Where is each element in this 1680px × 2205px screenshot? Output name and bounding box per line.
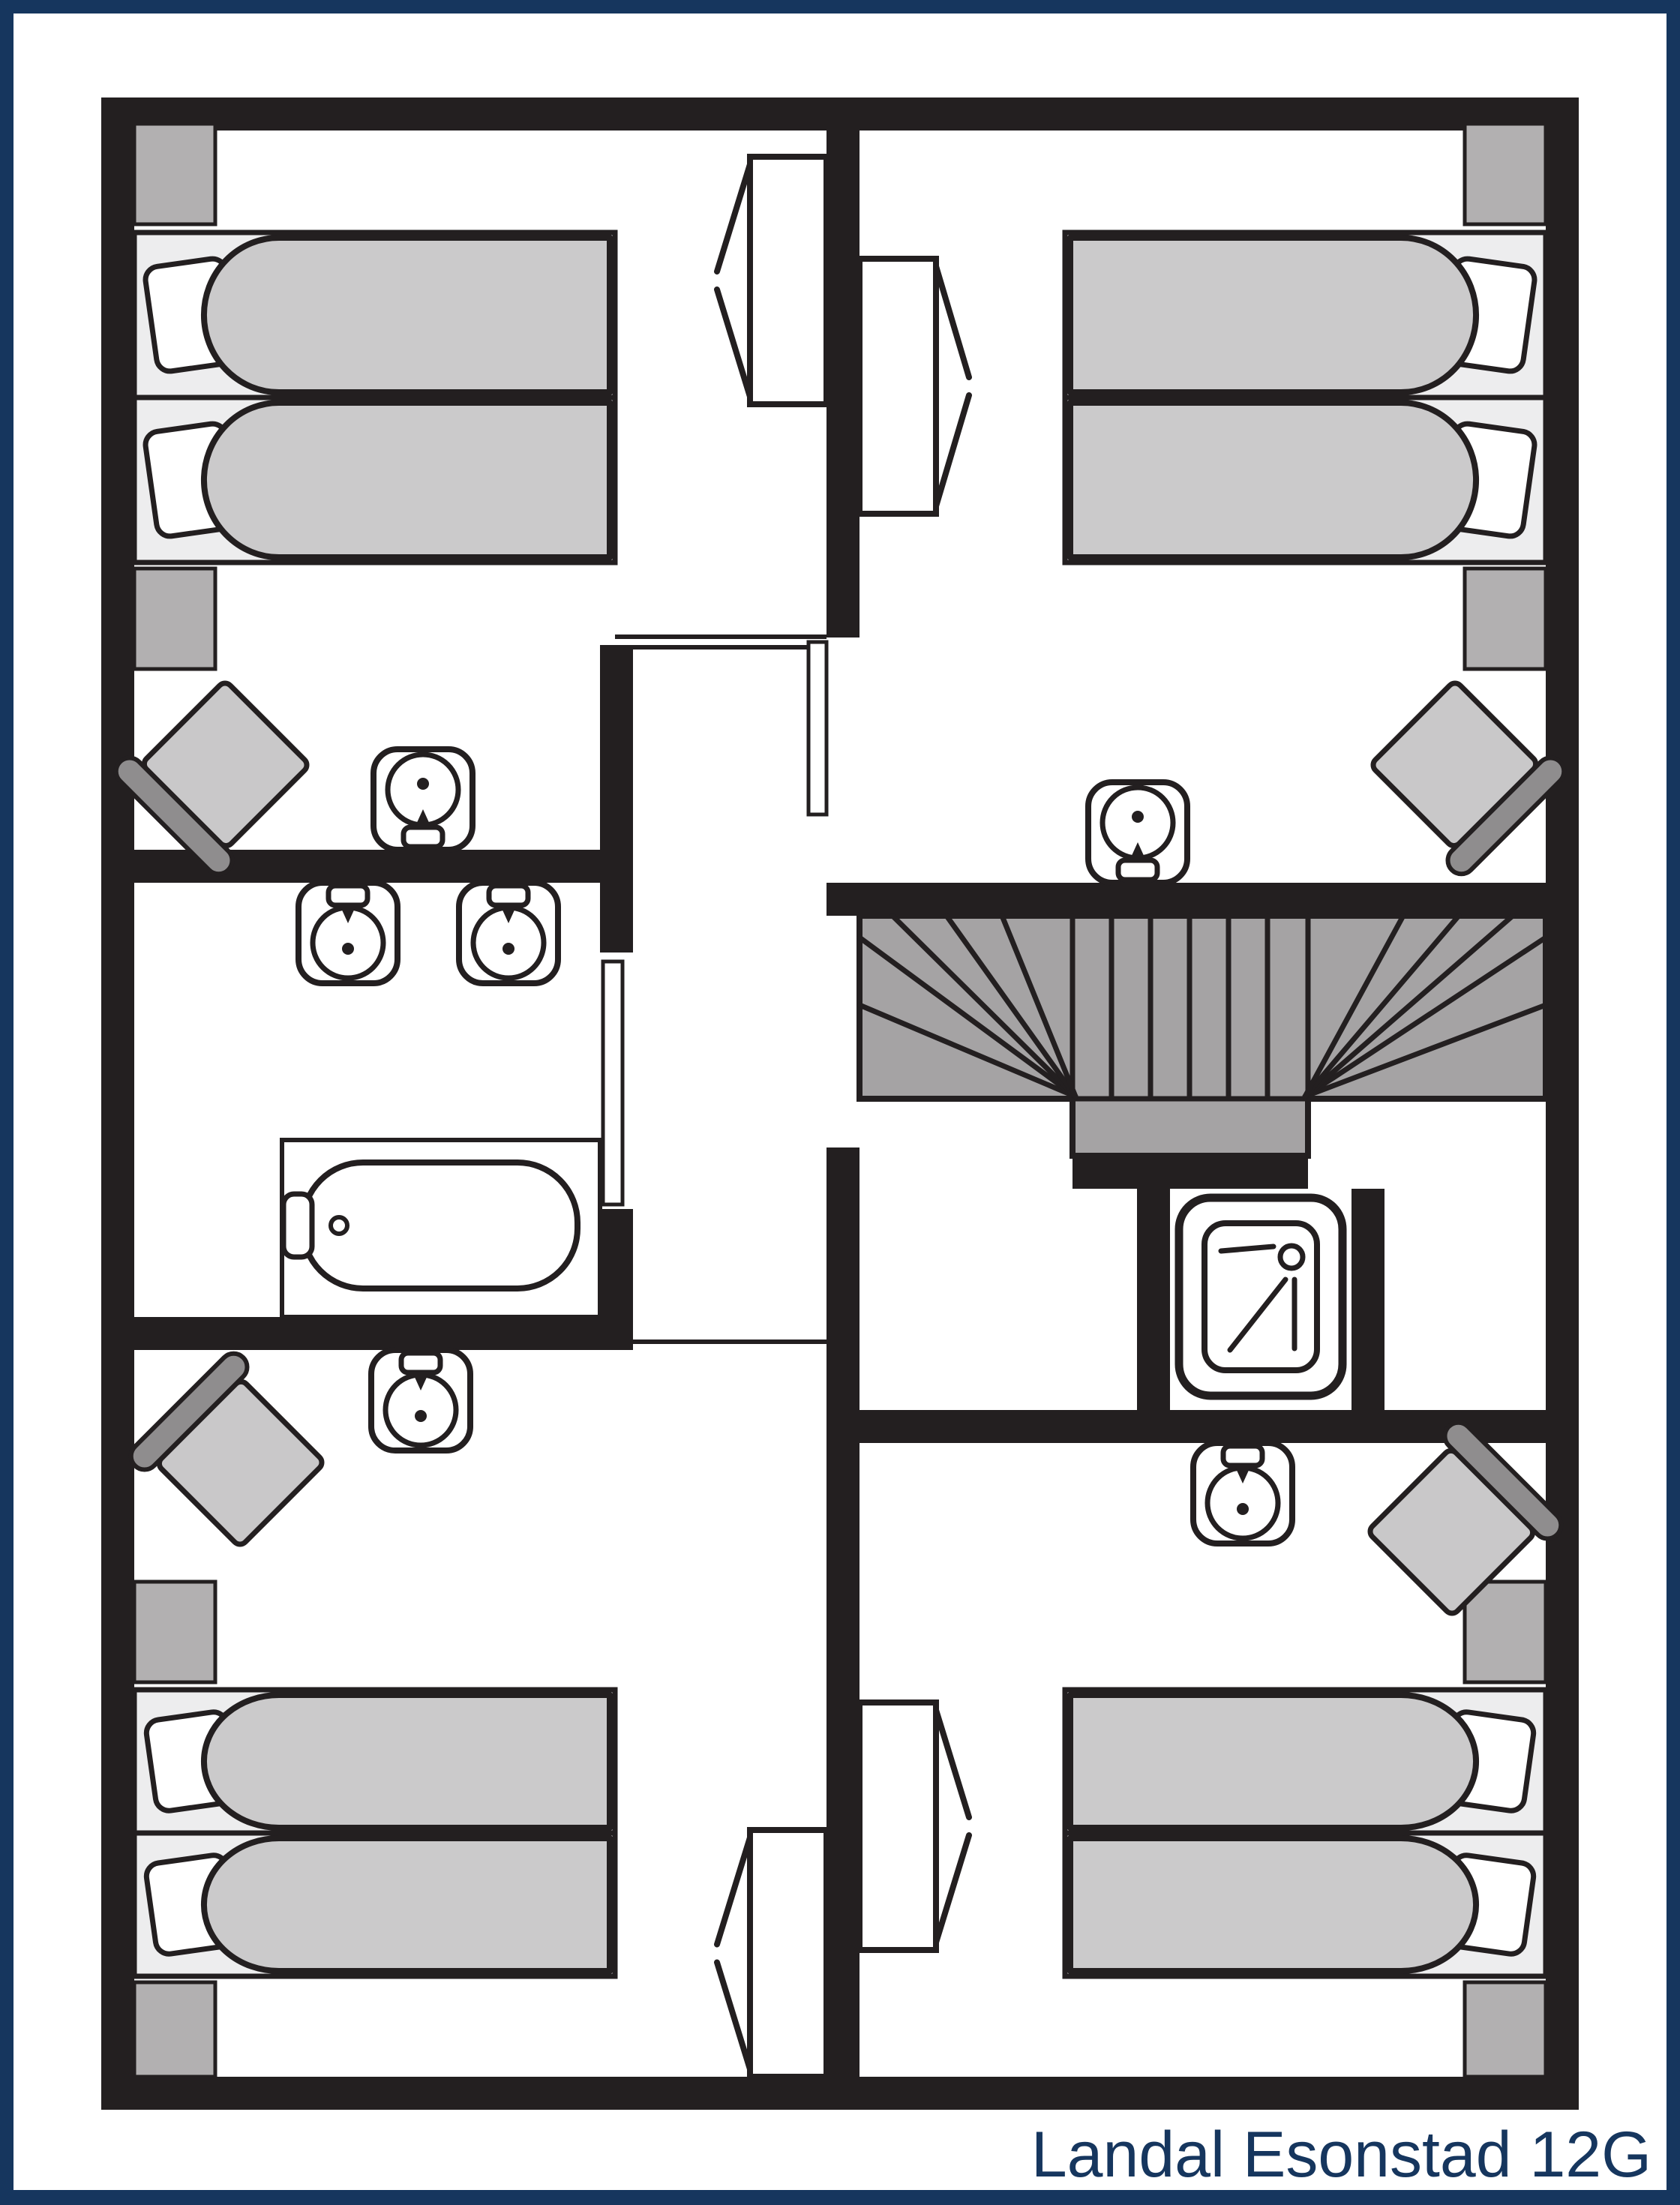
door-leaf-bathroom (603, 961, 622, 1204)
door-bottom-left-room-swing-upper (717, 1837, 750, 1945)
bed-top-left-2-duvet (204, 403, 610, 557)
basin-top-left-room-drain (417, 778, 429, 790)
nightstand-tr-upper (1465, 124, 1546, 224)
basin-top-right-room (1088, 782, 1187, 883)
bed-bottom-right-2 (1065, 1833, 1546, 1976)
nightstand-tl-upper (134, 124, 215, 224)
basin-bottom-left-room (371, 1350, 470, 1450)
door-top-right-room-panel (859, 259, 936, 514)
bed-bottom-right-2-duvet (1070, 1838, 1476, 1971)
bed-top-left-1-duvet (204, 238, 610, 392)
wall-bathroom-east-lower (600, 1209, 633, 1350)
nightstand-bl-upper (134, 1582, 215, 1682)
chair-bottom-left-room (125, 1348, 336, 1558)
door-top-left-room-panel (750, 157, 826, 404)
basin-top-right-room-drain (1132, 811, 1144, 823)
door-bottom-right-room-swing-lower (936, 1835, 969, 1942)
bathtub-drain (331, 1217, 347, 1234)
door-top-right-room-swing-upper (936, 266, 969, 377)
central-wall-bottom (826, 1147, 859, 2077)
bathtub-tap (283, 1194, 312, 1257)
door-bottom-right-room (859, 1702, 969, 1950)
door-bottom-right-room-panel (859, 1702, 936, 1950)
basin-bathroom-2 (459, 883, 558, 983)
door-top-right-room (859, 259, 969, 514)
wall-stairs-top (826, 883, 1546, 916)
door-bottom-left-room-swing-lower (717, 1963, 750, 2070)
shower-knob (1280, 1246, 1303, 1268)
shower-cubicle (1179, 1198, 1342, 1396)
central-wall-top (826, 130, 859, 637)
bed-top-right-1-duvet (1070, 238, 1476, 392)
bed-top-right-2-duvet (1070, 403, 1476, 557)
basin-top-right-room-tap (1118, 860, 1157, 880)
nightstand-tr-lower (1465, 568, 1546, 669)
staircase-outline (859, 916, 1546, 1156)
landing-top-line-2 (615, 645, 826, 649)
basin-top-left-room-tap (403, 827, 442, 847)
basin-bottom-right-room (1193, 1443, 1292, 1543)
nightstand-tl-lower (134, 568, 215, 669)
bed-bottom-left-1 (134, 1690, 615, 1833)
door-top-left-room-swing-upper (717, 164, 750, 271)
nightstand-bl-lower (134, 1982, 215, 2077)
floor-plan-svg (0, 0, 1680, 2205)
basin-bottom-left-room-drain (415, 1410, 427, 1422)
door-top-right-room-swing-lower (936, 395, 969, 506)
basin-bottom-right-room-drain (1237, 1503, 1249, 1515)
nightstand-br-upper (1465, 1582, 1546, 1682)
bed-bottom-left-1-duvet (204, 1695, 610, 1828)
wall-shower-left (1137, 1189, 1170, 1410)
basin-bathroom-1-tap (328, 886, 367, 905)
doorway-threshold-line (633, 1339, 826, 1344)
basin-bottom-right-room-tap (1223, 1446, 1262, 1465)
chair-top-right-room (1358, 668, 1569, 879)
door-top-left-room (717, 157, 826, 404)
staircase (859, 916, 1546, 1156)
floor-plan-page: Landal Esonstad 12G (0, 0, 1680, 2205)
basin-bathroom-1 (298, 883, 397, 983)
bathtub (282, 1140, 600, 1317)
door-bottom-left-room-panel (750, 1830, 826, 2077)
door-top-left-room-swing-lower (717, 289, 750, 397)
bed-top-left-2 (134, 397, 615, 562)
basin-bathroom-1-drain (342, 943, 354, 955)
bed-top-right-2 (1065, 397, 1546, 562)
nightstand-br-lower (1465, 1982, 1546, 2077)
basin-bathroom-2-tap (489, 886, 528, 905)
wall-shower-right (1351, 1189, 1384, 1410)
wall-bottom-left-room-top (134, 1317, 600, 1350)
door-bottom-left-room (717, 1830, 826, 2077)
bed-bottom-right-1-duvet (1070, 1695, 1476, 1828)
basin-bottom-left-room-tap (401, 1353, 440, 1372)
bed-bottom-left-2 (134, 1833, 615, 1976)
basin-top-left-room (373, 749, 472, 850)
bed-top-left-1 (134, 232, 615, 397)
bed-bottom-left-2-duvet (204, 1838, 610, 1971)
wall-shower-top-band (1072, 1156, 1308, 1189)
door-bottom-right-room-swing-upper (936, 1710, 969, 1817)
bed-top-right-1 (1065, 232, 1546, 397)
bed-bottom-right-1 (1065, 1690, 1546, 1833)
wall-bathroom-east-upper (600, 645, 633, 952)
landing-top-line-1 (615, 634, 826, 639)
plan-caption: Landal Esonstad 12G (1031, 2122, 1651, 2187)
chair-top-left-room (110, 668, 321, 879)
door-leaf-landing (808, 642, 826, 814)
basin-bathroom-2-drain (502, 943, 514, 955)
